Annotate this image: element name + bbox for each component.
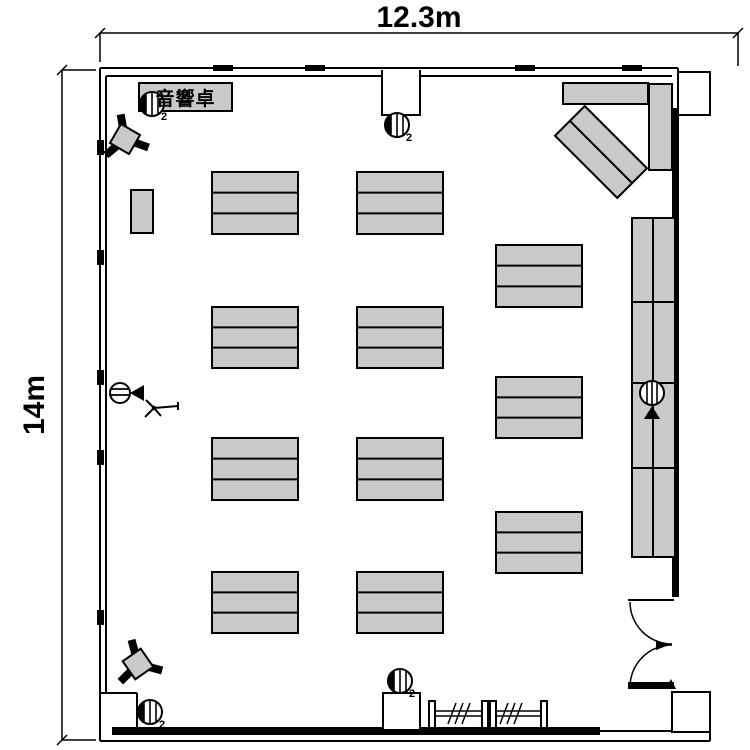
table-group [212, 438, 298, 500]
table-group [131, 190, 153, 233]
table-group [496, 377, 582, 438]
table-group [563, 83, 648, 104]
table-group [212, 307, 298, 368]
furniture-layer [131, 83, 675, 633]
svg-text:2: 2 [409, 688, 415, 700]
table-group [496, 245, 582, 307]
speaker-icon: 2 [385, 113, 412, 144]
floor-plan-drawing: 12.3m 14m [0, 0, 750, 750]
svg-text:2: 2 [406, 132, 412, 144]
tripod-icon [117, 637, 167, 691]
floor-plan: 12.3m 14m [0, 0, 750, 750]
table-group [649, 84, 672, 170]
table-group [212, 572, 298, 633]
top-alcove [382, 70, 420, 115]
height-dimension-label: 14m [18, 375, 51, 435]
mic-stand-icon [145, 400, 178, 417]
table-group [357, 172, 443, 234]
table-group-rotated [555, 106, 647, 198]
bottom-right-pillar [672, 692, 710, 732]
table-group [212, 172, 298, 234]
svg-text:2: 2 [161, 111, 167, 123]
door-double-swing [630, 602, 676, 689]
height-dimension-line [57, 65, 96, 745]
svg-text:2: 2 [159, 719, 165, 731]
width-dimension-label: 12.3m [376, 1, 461, 34]
top-right-pillar [678, 72, 710, 115]
table-group [357, 572, 443, 633]
projector-side-icon [110, 383, 144, 403]
speaker-icon: 2 [138, 700, 165, 731]
table-group [357, 438, 443, 500]
folding-partition [429, 701, 547, 728]
table-group [496, 512, 582, 573]
table-group [357, 307, 443, 368]
